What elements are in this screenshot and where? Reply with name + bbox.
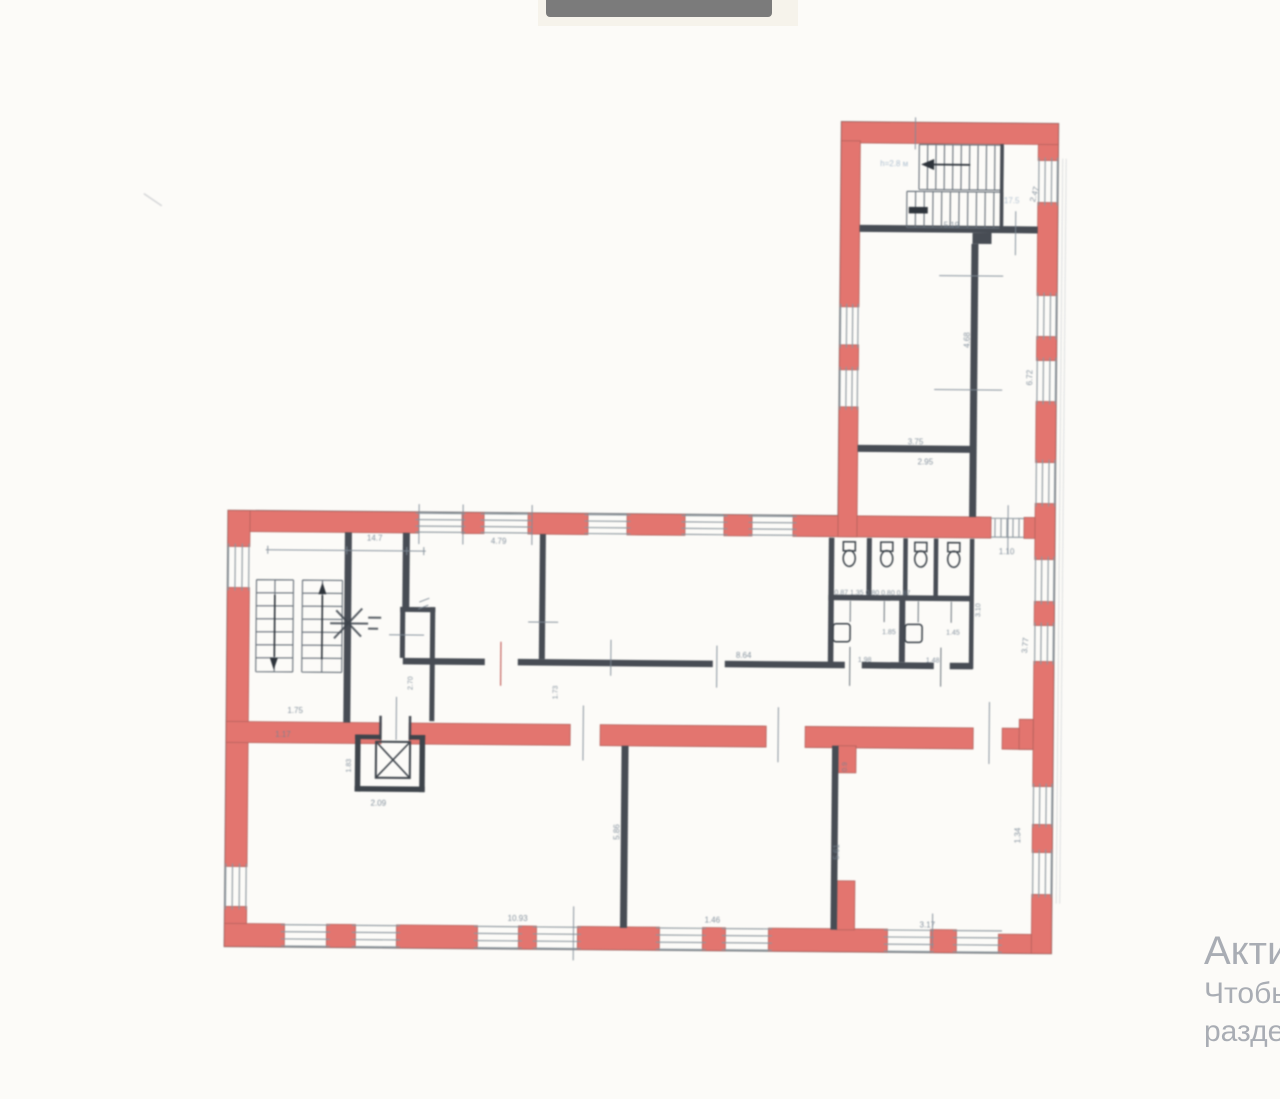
svg-text:1.98: 1.98 [858, 657, 872, 664]
svg-text:1.34: 1.34 [1013, 827, 1022, 843]
svg-text:8.64: 8.64 [736, 651, 752, 660]
svg-text:5.86: 5.86 [612, 824, 621, 840]
svg-text:6.72: 6.72 [1025, 369, 1034, 385]
svg-text:h=2.8 м: h=2.8 м [880, 159, 908, 168]
svg-text:1.85: 1.85 [882, 629, 896, 636]
svg-text:5.61: 5.61 [832, 844, 841, 860]
svg-text:1.83: 1.83 [346, 759, 353, 773]
svg-text:3.77: 3.77 [1020, 637, 1031, 654]
svg-text:10.93: 10.93 [508, 914, 529, 923]
svg-text:1.10: 1.10 [999, 547, 1015, 556]
svg-text:5.19: 5.19 [944, 221, 960, 230]
svg-text:1.75: 1.75 [287, 706, 303, 715]
svg-text:1.48: 1.48 [926, 657, 940, 664]
svg-text:1.73: 1.73 [552, 686, 559, 700]
svg-text:4.68: 4.68 [963, 332, 972, 348]
svg-text:1.45: 1.45 [946, 630, 960, 637]
svg-text:0.9: 0.9 [842, 762, 849, 772]
svg-text:0.87 1.35 0.80 0.80 0.87: 0.87 1.35 0.80 0.80 0.87 [834, 590, 910, 598]
svg-text:14.7: 14.7 [367, 534, 383, 543]
svg-text:3.75: 3.75 [908, 437, 924, 446]
svg-text:1.46: 1.46 [705, 916, 721, 925]
svg-text:2.70: 2.70 [408, 676, 415, 690]
svg-text:3.17: 3.17 [919, 920, 935, 929]
svg-text:17.5: 17.5 [1004, 196, 1020, 205]
svg-text:3.10: 3.10 [975, 603, 982, 617]
svg-text:1.17: 1.17 [275, 730, 291, 739]
svg-text:2.95: 2.95 [918, 457, 934, 466]
svg-text:4.79: 4.79 [491, 537, 507, 546]
svg-text:2.09: 2.09 [371, 799, 387, 808]
